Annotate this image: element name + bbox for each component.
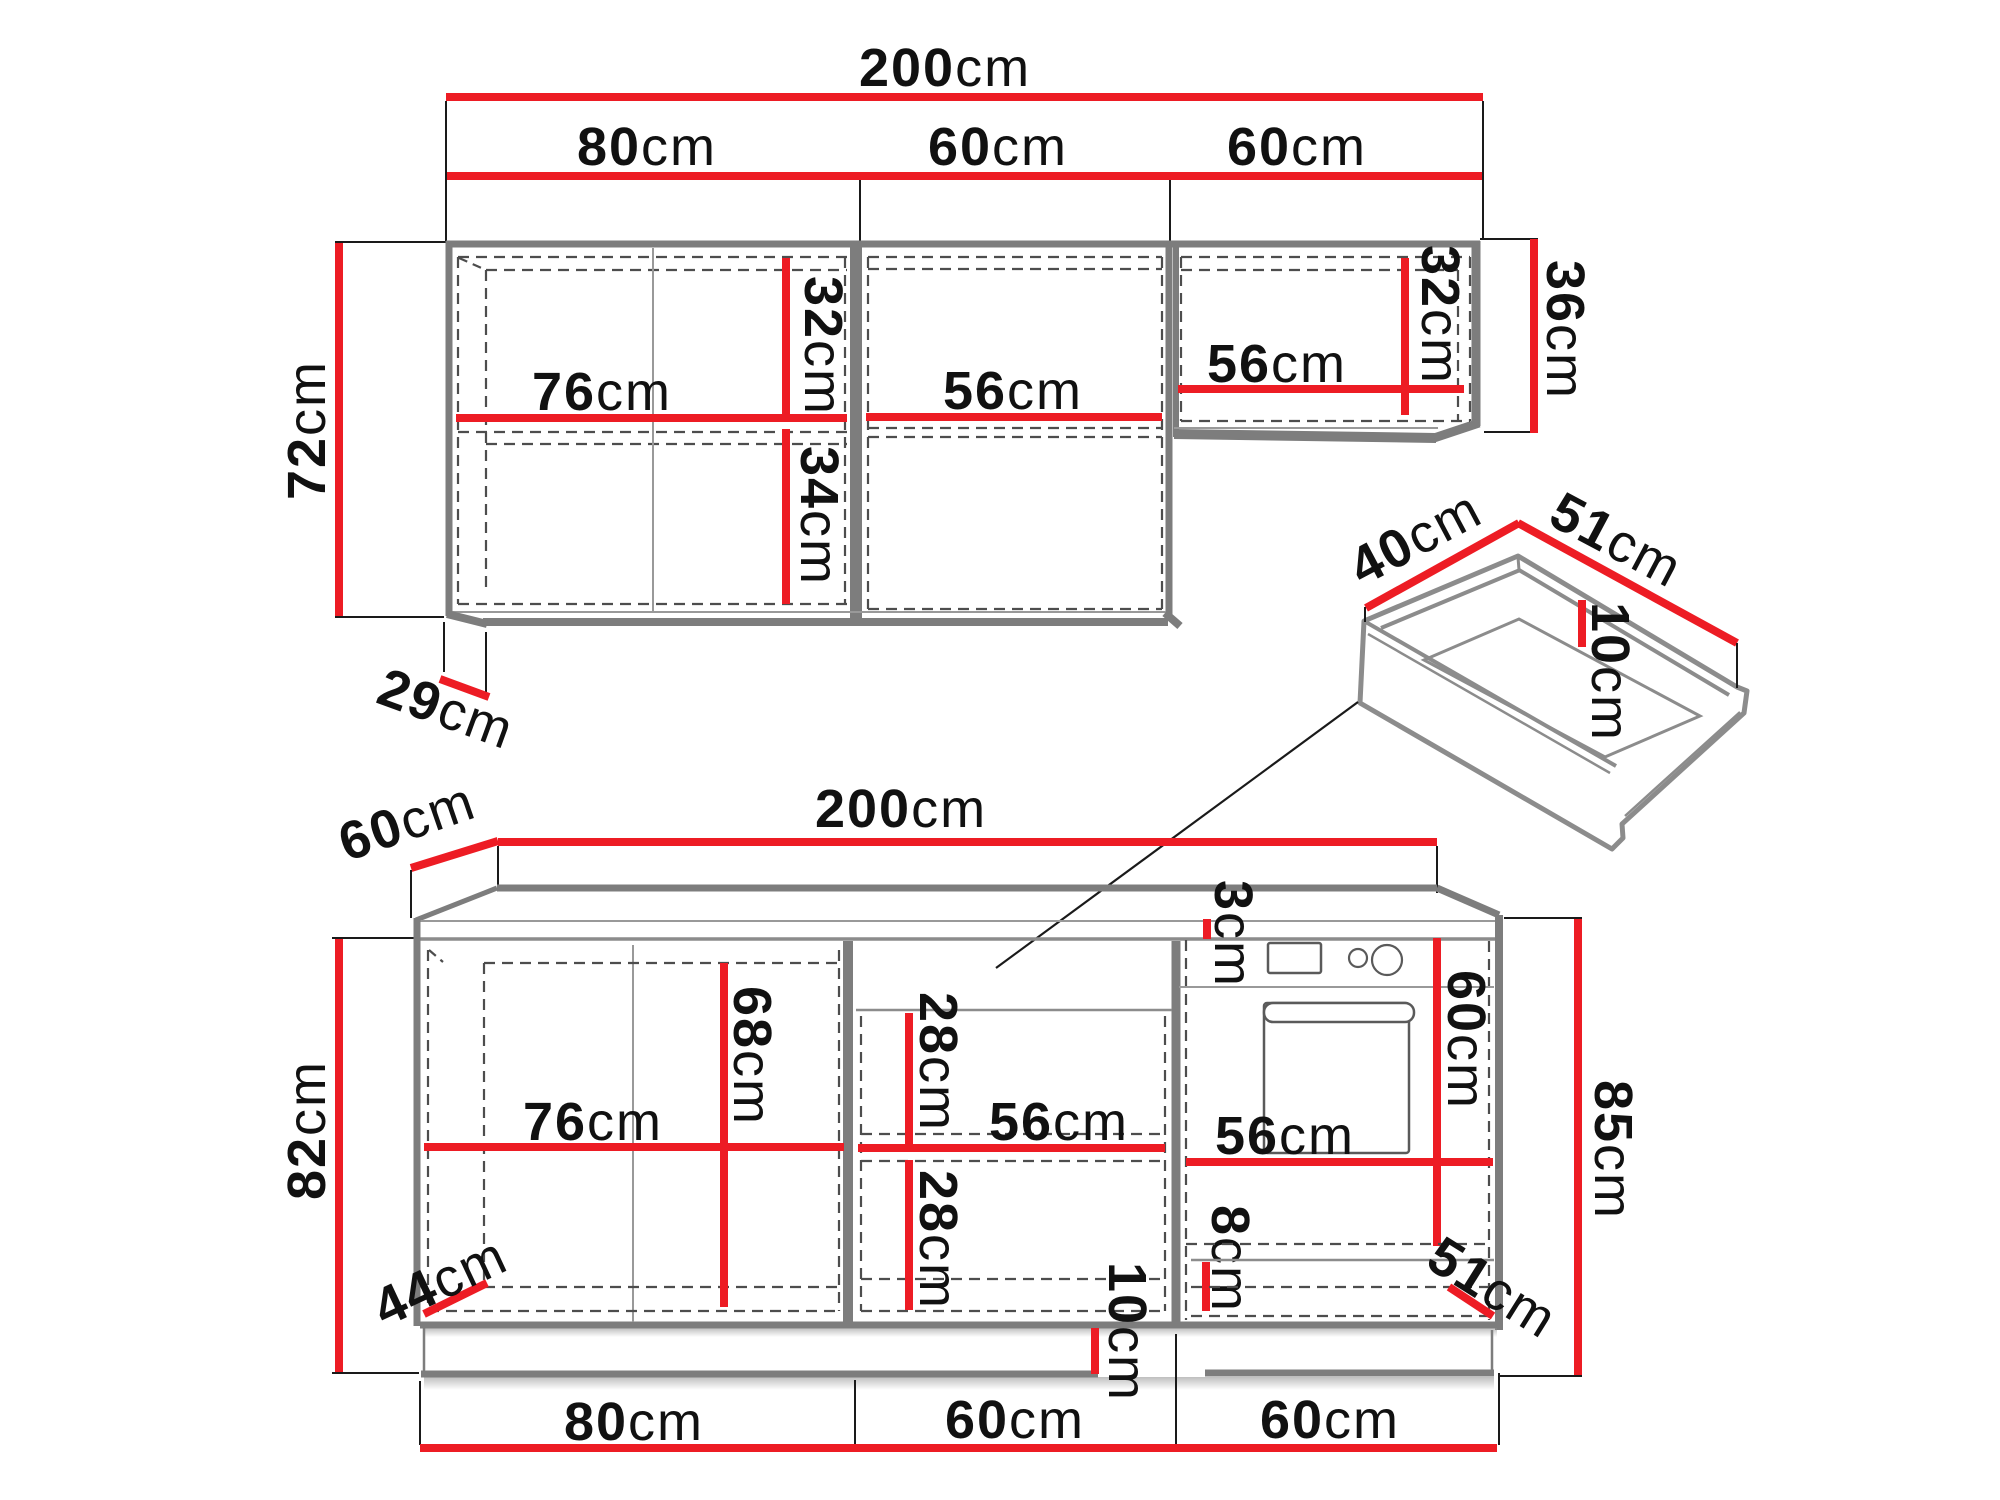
svg-text:60cm: 60cm: [928, 117, 1068, 177]
svg-text:200cm: 200cm: [815, 779, 987, 839]
svg-text:32cm: 32cm: [793, 276, 853, 416]
svg-text:200cm: 200cm: [859, 38, 1031, 98]
svg-text:80cm: 80cm: [564, 1392, 704, 1452]
svg-text:80cm: 80cm: [577, 117, 717, 177]
svg-text:32cm: 32cm: [1410, 245, 1470, 385]
svg-text:34cm: 34cm: [789, 446, 849, 586]
svg-text:28cm: 28cm: [908, 1170, 968, 1310]
svg-text:72cm: 72cm: [277, 360, 337, 500]
svg-text:56cm: 56cm: [1207, 334, 1347, 394]
svg-text:56cm: 56cm: [943, 361, 1083, 421]
svg-text:85cm: 85cm: [1583, 1080, 1643, 1220]
svg-text:56cm: 56cm: [1215, 1106, 1355, 1166]
svg-text:82cm: 82cm: [277, 1060, 337, 1200]
svg-text:60cm: 60cm: [945, 1390, 1085, 1450]
svg-text:60cm: 60cm: [1227, 117, 1367, 177]
svg-text:56cm: 56cm: [989, 1092, 1129, 1152]
svg-text:3cm: 3cm: [1203, 880, 1263, 988]
svg-text:28cm: 28cm: [908, 992, 968, 1132]
svg-text:68cm: 68cm: [722, 986, 782, 1126]
svg-text:76cm: 76cm: [523, 1092, 663, 1152]
svg-text:10cm: 10cm: [1097, 1262, 1157, 1402]
svg-text:10cm: 10cm: [1580, 602, 1640, 742]
svg-text:76cm: 76cm: [532, 362, 672, 422]
svg-text:36cm: 36cm: [1535, 260, 1595, 400]
svg-text:60cm: 60cm: [1260, 1390, 1400, 1450]
svg-text:60cm: 60cm: [1436, 970, 1496, 1110]
